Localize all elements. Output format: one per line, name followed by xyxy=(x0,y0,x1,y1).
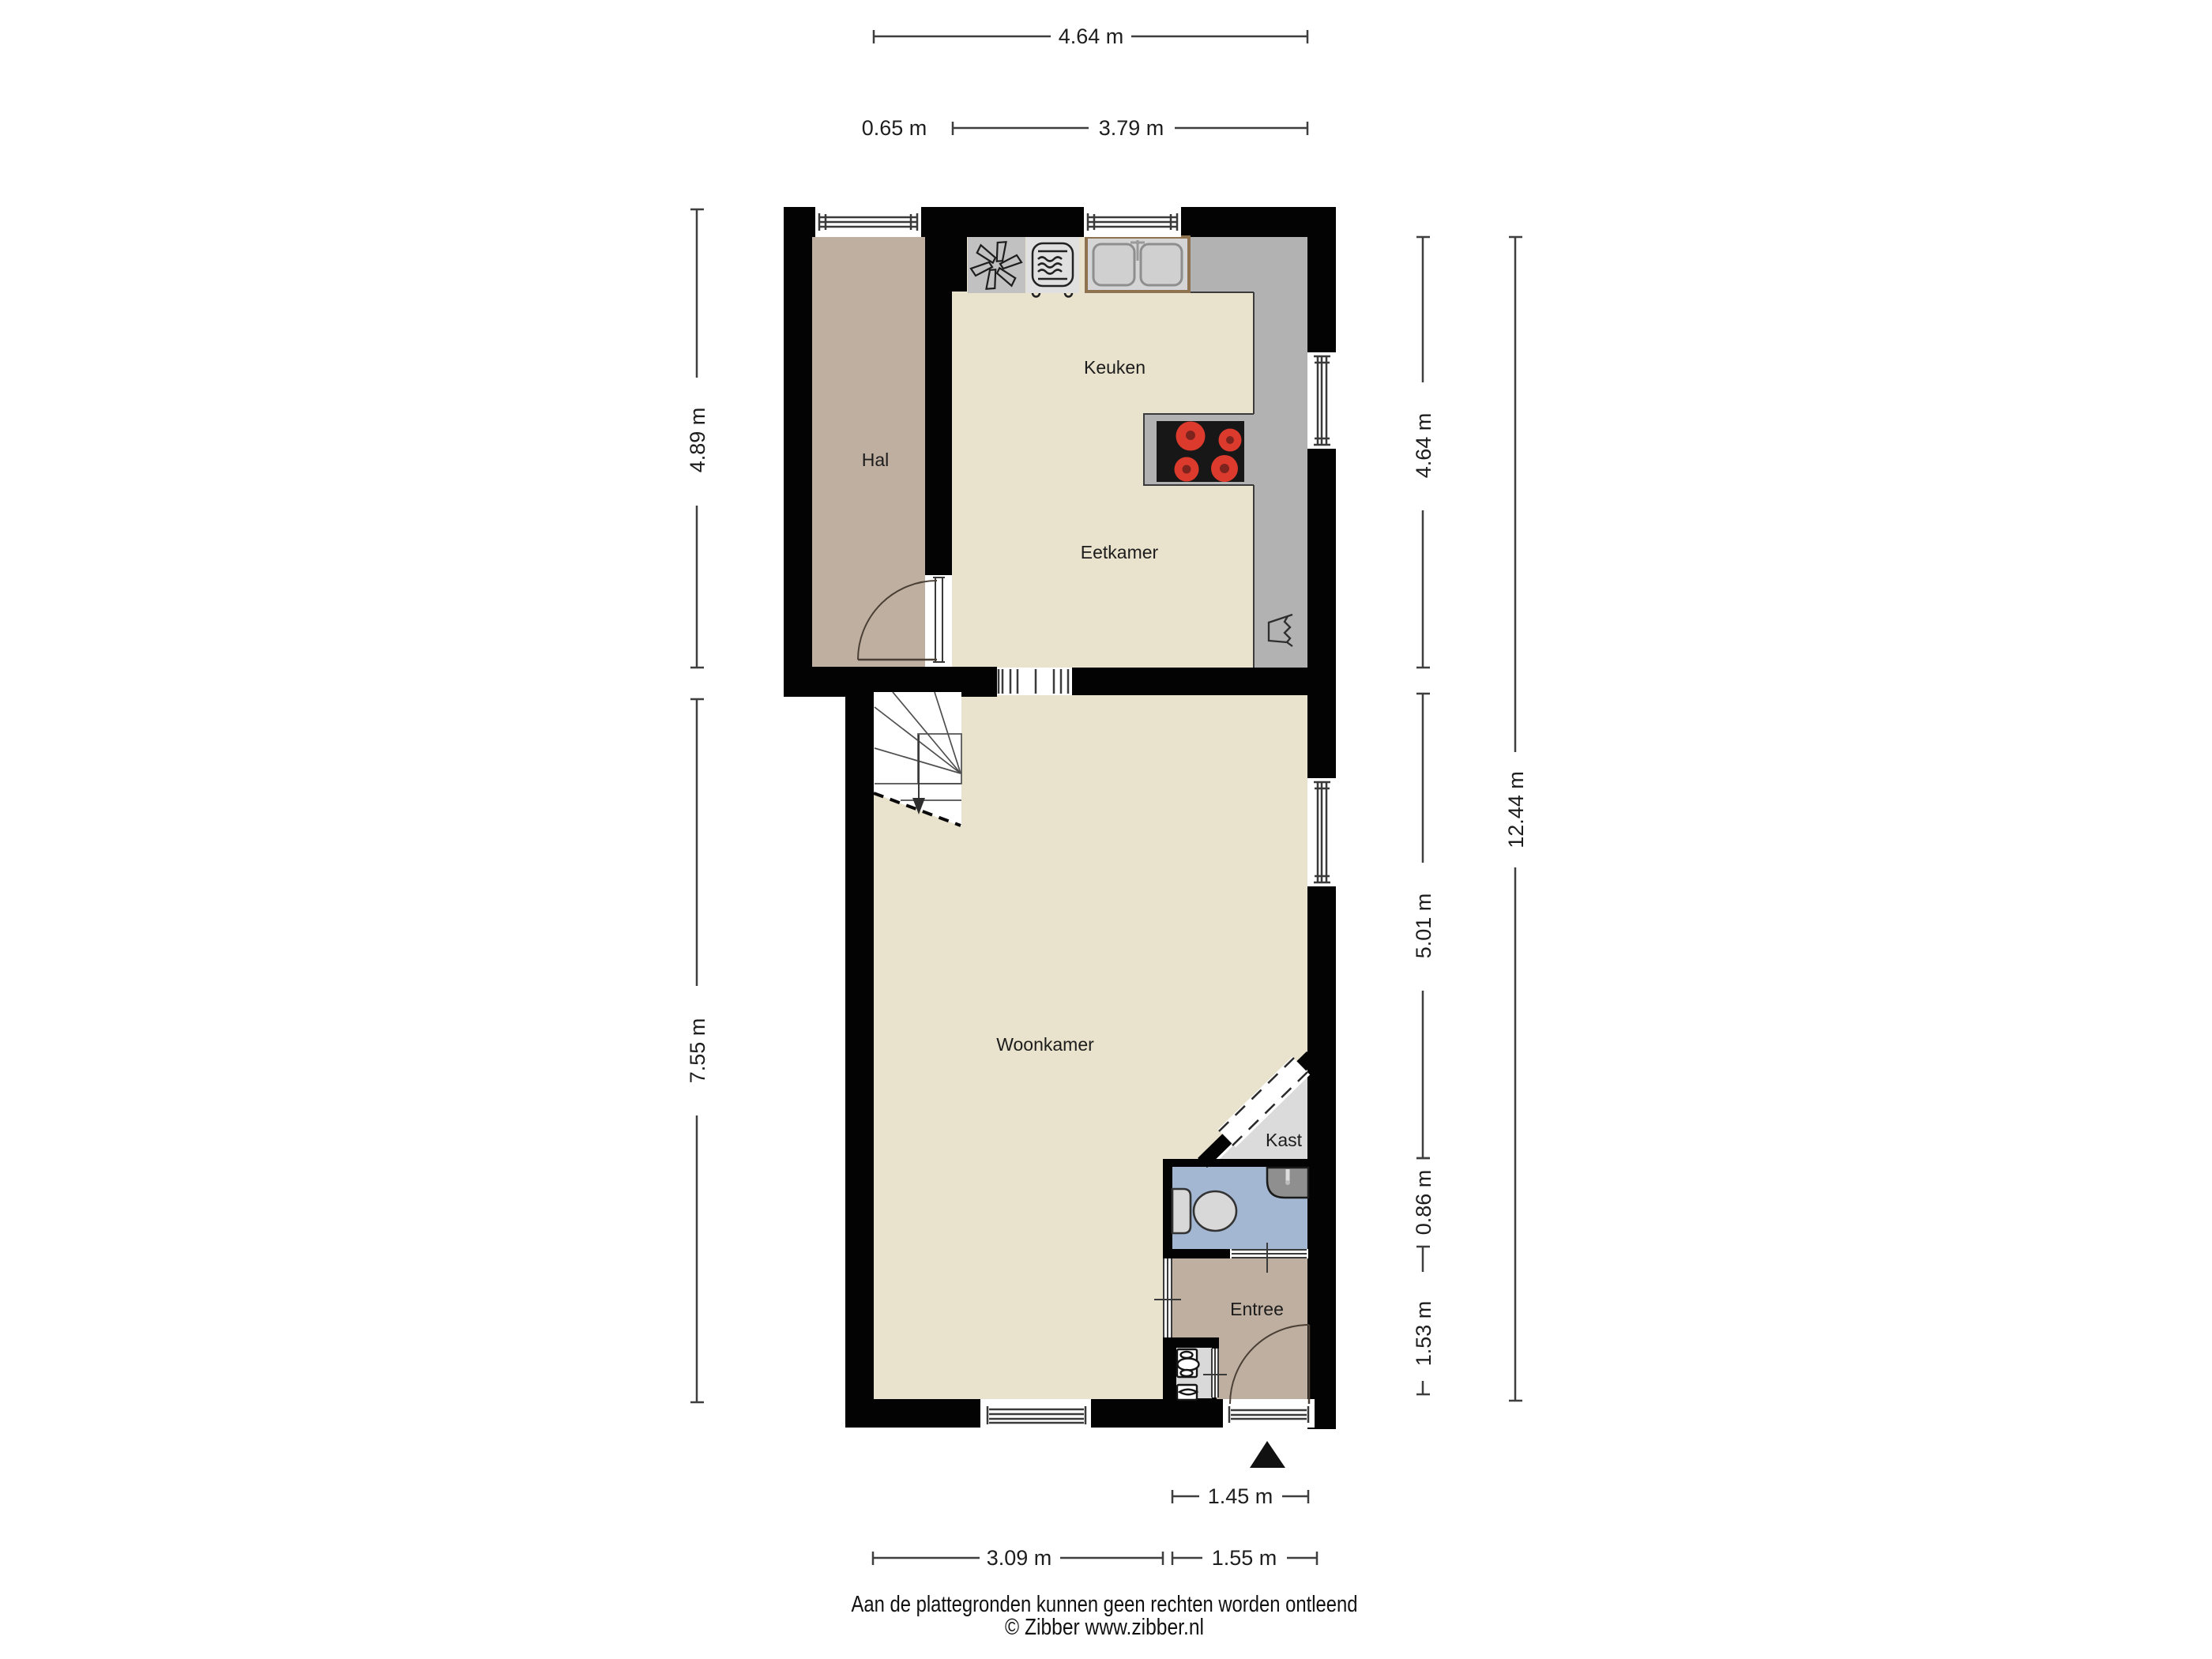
svg-text:0.86 m: 0.86 m xyxy=(1412,1170,1435,1236)
svg-text:Kast: Kast xyxy=(1266,1130,1303,1150)
svg-text:© Zibber www.zibber.nl: © Zibber www.zibber.nl xyxy=(1005,1615,1204,1640)
svg-text:Entree: Entree xyxy=(1230,1299,1284,1319)
svg-text:4.89 m: 4.89 m xyxy=(686,408,709,473)
svg-text:3.09 m: 3.09 m xyxy=(987,1546,1052,1570)
svg-text:Aan de plattegronden kunnen ge: Aan de plattegronden kunnen geen rechten… xyxy=(852,1592,1358,1617)
svg-text:0.65 m: 0.65 m xyxy=(862,116,927,140)
svg-text:4.64 m: 4.64 m xyxy=(1412,413,1435,479)
svg-text:1.45 m: 1.45 m xyxy=(1208,1484,1273,1508)
svg-text:1.53 m: 1.53 m xyxy=(1412,1301,1435,1367)
svg-text:5.01 m: 5.01 m xyxy=(1412,893,1435,959)
svg-text:1.55 m: 1.55 m xyxy=(1212,1546,1277,1570)
svg-text:Eetkamer: Eetkamer xyxy=(1081,542,1159,562)
svg-text:Keuken: Keuken xyxy=(1084,357,1145,378)
svg-text:4.64 m: 4.64 m xyxy=(1059,24,1124,48)
svg-text:3.79 m: 3.79 m xyxy=(1099,116,1164,140)
svg-text:12.44 m: 12.44 m xyxy=(1504,771,1528,848)
svg-text:Hal: Hal xyxy=(862,450,890,470)
svg-text:7.55 m: 7.55 m xyxy=(686,1018,709,1084)
svg-text:Woonkamer: Woonkamer xyxy=(996,1034,1094,1055)
